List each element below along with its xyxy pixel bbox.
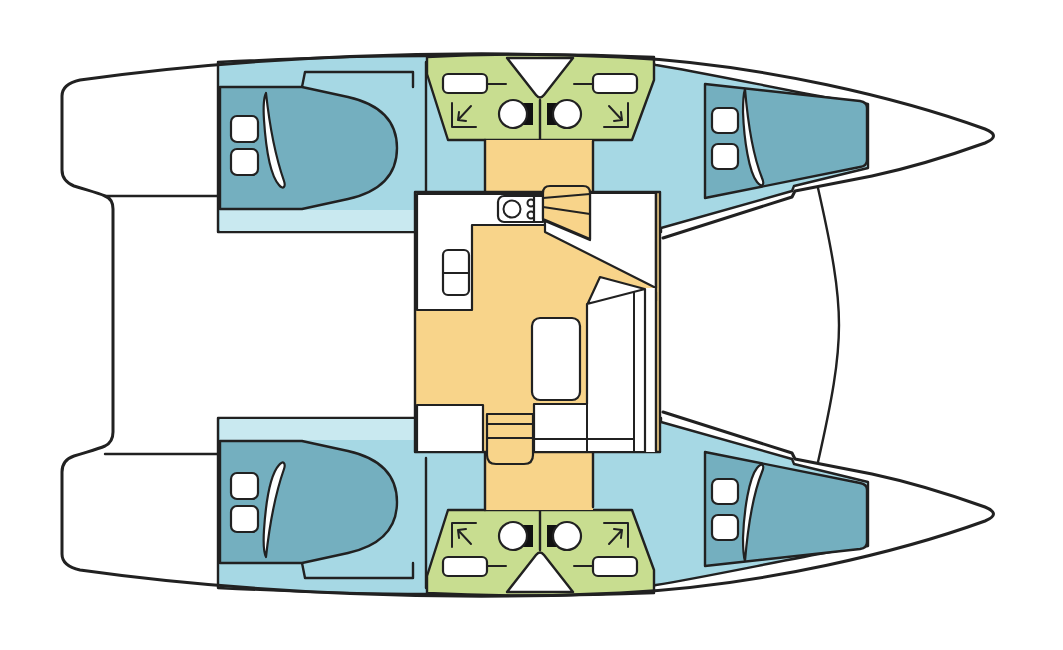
toilet-icon: [553, 100, 581, 128]
toilet-icon: [553, 522, 581, 550]
saloon: [415, 186, 660, 464]
side-shelf: [645, 288, 656, 452]
port-heads: [427, 55, 654, 140]
hatch-icon: [231, 149, 258, 175]
toilet-icon: [499, 100, 527, 128]
sink: [443, 557, 487, 576]
starboard-heads: [427, 510, 654, 595]
hatch-icon: [231, 506, 258, 532]
port-aft-cabin-foot-shelf: [220, 210, 424, 231]
sink: [593, 557, 637, 576]
toilet-icon: [499, 522, 527, 550]
sink: [443, 74, 487, 93]
door-leaf: [534, 196, 543, 222]
floor-plan-svg: [0, 0, 1063, 650]
saloon-table: [532, 318, 580, 400]
catamaran-floor-plan: [0, 0, 1063, 650]
hatch-icon: [231, 473, 258, 499]
hatch-icon: [712, 479, 738, 504]
sink: [593, 74, 637, 93]
trampoline-beam-line: [818, 188, 839, 462]
starboard-aft-cabin-foot-shelf: [220, 419, 424, 440]
hatch-icon: [712, 515, 738, 540]
hatch-icon: [712, 144, 738, 169]
hatch-icon: [231, 116, 258, 142]
storage-locker: [417, 405, 483, 452]
starboard-aft-berth: [220, 441, 397, 563]
hatch-icon: [712, 108, 738, 133]
